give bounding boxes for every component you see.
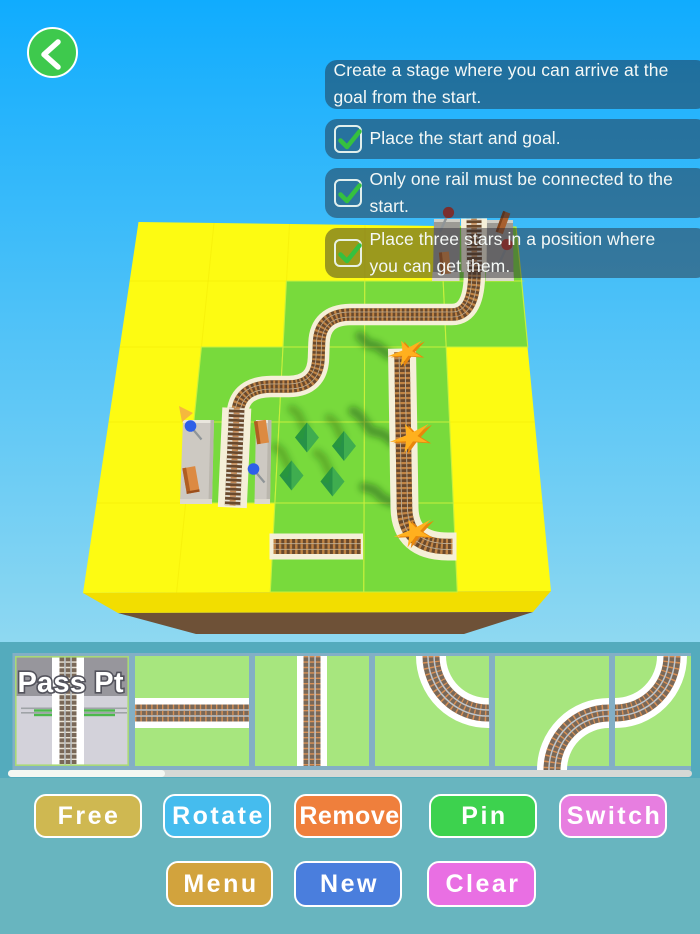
svg-text:Pass Pt: Pass Pt [18, 667, 124, 699]
